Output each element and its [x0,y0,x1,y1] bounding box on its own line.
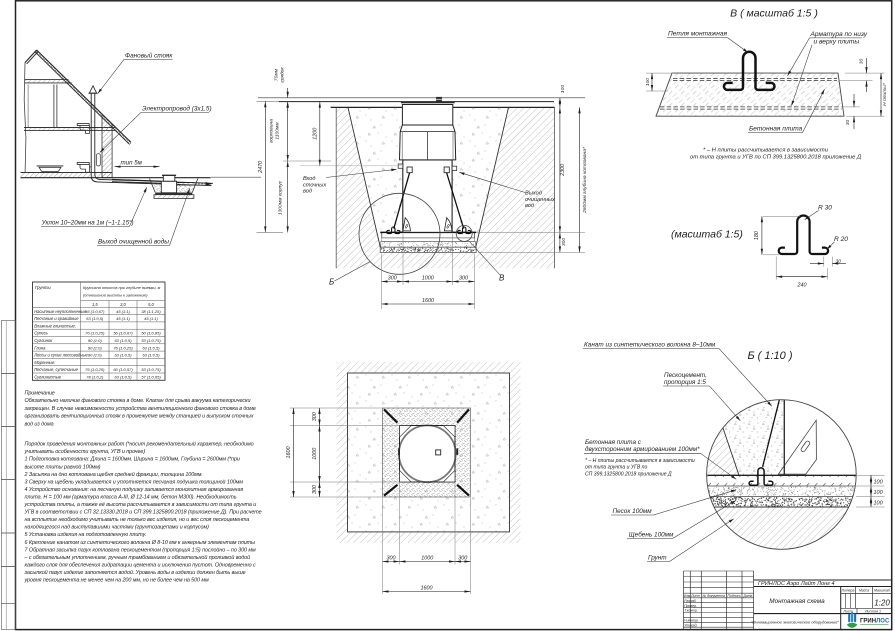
svg-text:60 (1:0,57): 60 (1:0,57) [113,367,133,372]
svg-text:Бетонная плита с: Бетонная плита с [585,439,642,446]
svg-text:56 (1:0,67): 56 (1:0,67) [113,331,133,336]
svg-text:организовать вентиляционный ст: организовать вентиляционный стояк в пром… [25,413,254,420]
svg-text:1600: 1600 [286,447,292,459]
svg-text:Щебень 100мм: Щебень 100мм [629,530,674,538]
svg-text:Арматура по низу: Арматура по низу [810,31,868,38]
svg-text:(отношение высоты к заложению): (отношение высоты к заложению) [83,293,148,298]
svg-text:горловина: горловина [269,119,274,143]
svg-text:300: 300 [459,276,468,282]
svg-text:Листов 1: Листов 1 [864,609,881,613]
svg-text:Монтажная схема: Монтажная схема [769,598,825,605]
svg-text:* – Н плиты рассчитывается в з: * – Н плиты рассчитывается в зависимости [703,147,829,153]
svg-text:Фановый стояк: Фановый стояк [125,51,173,59]
svg-text:30: 30 [845,120,851,126]
svg-text:Примечание: Примечание [25,391,55,397]
svg-text:Разраб.: Разраб. [684,599,696,603]
svg-text:3,0: 3,0 [120,302,126,307]
svg-text:90 (1:0): 90 (1:0) [88,345,102,350]
svg-text:Б ( 1:10 ): Б ( 1:10 ) [747,350,792,362]
svg-text:2300: 2300 [560,164,566,177]
svg-text:53 (1:0,75): 53 (1:0,75) [141,367,161,372]
svg-text:ГРИНЛОС Аэро Лайт Лонг 4: ГРИНЛОС Аэро Лайт Лонг 4 [758,580,835,587]
svg-text:Порядок проведения монтажных р: Порядок проведения монтажных работ (*нос… [25,441,254,448]
svg-text:Б: Б [329,278,334,287]
svg-text:100: 100 [874,490,884,496]
svg-text:5,0: 5,0 [148,302,154,307]
svg-text:от типа грунта и УГВ по: от типа грунта и УГВ по [585,465,647,471]
svg-text:45 (1:1): 45 (1:1) [116,309,130,314]
svg-text:Суглинистые: Суглинистые [34,375,62,380]
svg-text:6 Крепление канатом из синтет: 6 Крепление канатом из синтетического во… [25,540,256,546]
svg-text:вод: вод [303,189,312,195]
svg-text:70мм: 70мм [273,68,279,81]
svg-text:пропорция 1:5: пропорция 1:5 [664,379,706,386]
svg-text:Песчаные, супесчаные: Песчаные, супесчаные [34,367,78,372]
svg-text:1,5: 1,5 [92,302,98,307]
svg-text:Масштаб: Масштаб [874,589,890,593]
svg-text:2 Засыпка на дно котлована ще: 2 Засыпка на дно котлована щебня средней… [24,471,203,478]
svg-text:Вход: Вход [303,176,315,182]
svg-text:Пескоцемент,: Пескоцемент, [664,372,707,379]
svg-text:Провер.: Провер. [684,604,697,608]
svg-text:Песчаные и гравийные: Песчаные и гравийные [34,316,79,321]
svg-text:Утверд.: Утверд. [684,623,697,627]
svg-text:2600мм глубина котлована*: 2600мм глубина котлована* [582,146,588,214]
svg-text:1000: 1000 [421,556,433,562]
svg-text:Петля монтажная: Петля монтажная [668,30,728,37]
svg-text:(масштаб 1:5): (масштаб 1:5) [671,229,743,241]
svg-text:3 Сверху на щебень укладывает: 3 Сверху на щебень укладывается и уплотн… [25,478,244,485]
svg-text:Грунт: Грунт [648,554,667,561]
svg-text:100: 100 [874,479,884,485]
svg-text:1300мм корпус: 1300мм корпус [278,180,284,215]
svg-text:100: 100 [560,85,566,93]
svg-text:Дата: Дата [743,594,753,598]
svg-text:76 (1:0,25): 76 (1:0,25) [113,345,133,350]
svg-text:Уклон 10–20мм на 1м (~1-1.15°): Уклон 10–20мм на 1м (~1-1.15°) [41,219,134,226]
svg-text:Изм.Лист: Изм.Лист [684,594,700,598]
svg-text:1:20: 1:20 [874,599,890,608]
svg-text:Моренные:: Моренные: [34,360,55,365]
svg-text:1600: 1600 [421,586,433,592]
svg-text:Подпись: Подпись [728,594,742,598]
svg-text:“Инновационное экологическое о: “Инновационное экологическое оборудовани… [751,619,839,624]
svg-text:* – Н плиты рассчитывается в з: * – Н плиты рассчитывается в зависимости [585,458,695,464]
svg-text:Электропровод (3х1.5): Электропровод (3х1.5) [142,104,212,112]
svg-text:63 (1:0,5): 63 (1:0,5) [142,345,160,350]
svg-text:уровня пескоцемента не менее ч: уровня пескоцемента не менее чем на 200 … [24,578,210,584]
svg-text:Суглинок: Суглинок [34,338,53,343]
svg-text:грядок: грядок [279,67,285,83]
svg-text:1000: 1000 [422,276,434,282]
svg-text:№ документа: № документа [703,594,726,598]
svg-text:57 (1:0,65): 57 (1:0,65) [141,375,161,380]
svg-text:63 (1:0,5): 63 (1:0,5) [86,316,104,321]
svg-text:300: 300 [312,412,318,421]
svg-text:Бетонная плита: Бетонная плита [749,125,803,132]
svg-text:Глина: Глина [34,345,46,350]
svg-text:R 20: R 20 [834,236,848,243]
svg-text:50 (1:0,85): 50 (1:0,85) [141,331,161,336]
svg-text:Влажные глинистые:: Влажные глинистые: [34,323,76,328]
svg-text:вод из дома: вод из дома [25,421,54,427]
svg-text:плита. Н = 100 мм (арматура кл: плита. Н = 100 мм (арматура класса А-III… [25,494,237,500]
svg-text:запрещен. В случае невозможнос: запрещен. В случае невозможности устройс… [24,405,256,412]
svg-text:тип 5м: тип 5м [121,159,143,166]
svg-text:1100мм: 1100мм [275,122,281,140]
svg-text:Песок 100мм: Песок 100мм [613,508,653,515]
svg-text:45 (1:1): 45 (1:1) [144,316,158,321]
svg-text:Н плиты*: Н плиты* [882,82,888,106]
svg-text:двухсторонним армированием 100: двухсторонним армированием 100мм* [585,445,700,453]
svg-text:90 (1:0): 90 (1:0) [88,338,102,343]
svg-text:Н.контр.: Н.контр. [684,619,698,623]
svg-text:Грунты: Грунты [35,285,51,290]
svg-text:180: 180 [754,231,760,240]
svg-text:45 (1:1): 45 (1:1) [116,316,130,321]
svg-text:76 (1:0,25): 76 (1:0,25) [85,331,105,336]
svg-text:56 (1:0,67): 56 (1:0,67) [85,309,105,314]
svg-text:от типа грунта и УГВ по СП 399: от типа грунта и УГВ по СП 399.1325800.2… [690,155,861,161]
svg-text:63 (1:0,5): 63 (1:0,5) [142,353,160,358]
svg-text:240: 240 [797,282,807,288]
svg-text:– с обязательным уплотнением,: – с обязательным уплотнением, ручным тра… [24,554,251,561]
svg-text:засыпкой пазух изделие заполня: засыпкой пазух изделие заполняется водой… [24,569,246,576]
svg-text:СП 399.1325800.2018 приложение: СП 399.1325800.2018 приложение Д [585,471,672,477]
svg-text:300: 300 [458,556,467,562]
svg-text:63 (1:0,5): 63 (1:0,5) [114,375,132,380]
svg-text:300: 300 [561,238,567,246]
svg-text:1000: 1000 [312,448,318,460]
svg-text:1 Подготовка котлована: Длина: 1 Подготовка котлована: Длина = 1600мм. … [25,457,240,463]
svg-text:30: 30 [836,258,842,264]
svg-text:300: 300 [388,276,397,282]
svg-text:5 Установка изделия на подгот: 5 Установка изделия на подготовленную пл… [25,532,147,538]
svg-text:Лессы и сухие лессовидные: Лессы и сухие лессовидные [33,353,88,358]
svg-text:В ( масштаб 1:5 ): В ( масштаб 1:5 ) [730,8,818,20]
svg-text:Супесь: Супесь [34,331,48,336]
svg-text:устройства плиты, а также её в: устройства плиты, а также её высота расс… [24,501,257,508]
svg-text:учитывать особенности грунта,: учитывать особенности грунта, УГВ и проч… [24,449,146,455]
svg-text:78 (1:0,2): 78 (1:0,2) [86,375,104,380]
svg-text:30: 30 [859,59,865,65]
svg-text:Канат из синтетического волокн: Канат из синтетического волокна 8–10мм [584,341,716,348]
svg-text:вод: вод [525,203,534,209]
svg-text:90 (1:0): 90 (1:0) [88,353,102,358]
svg-text:300: 300 [387,556,396,562]
svg-text:100: 100 [645,78,651,86]
svg-text:300: 300 [312,485,318,494]
svg-text:Масса: Масса [859,589,869,593]
svg-text:высоте плиты равной 100мм): высоте плиты равной 100мм) [25,463,101,470]
svg-text:76 (1:0,25): 76 (1:0,25) [85,367,105,372]
svg-text:R 30: R 30 [818,204,832,211]
svg-text:Литера: Литера [841,589,855,593]
svg-text:Обязательно наличие фанового с: Обязательно наличие фанового стояка в до… [25,398,251,404]
svg-text:каждого слоя для обеспечения г: каждого слоя для обеспечения гидратации … [25,562,256,568]
svg-text:Выход: Выход [525,191,542,197]
svg-text:Насыпные неуплотненные: Насыпные неуплотненные [34,309,87,314]
svg-text:Выход очищенной воды: Выход очищенной воды [98,237,169,245]
svg-text:53 (1:0,75): 53 (1:0,75) [141,338,161,343]
svg-text:и верху плиты: и верху плиты [814,39,860,46]
svg-text:сточных: сточных [303,182,326,188]
svg-text:1200: 1200 [312,128,318,140]
svg-text:Крутизна откосов при глубине в: Крутизна откосов при глубине выемки, м [83,285,161,290]
svg-text:100: 100 [874,500,884,506]
svg-text:4 Устройство основания: на пе: 4 Устройство основания: на песчаную поду… [25,486,244,493]
svg-text:Т.контр.: Т.контр. [684,609,698,613]
svg-text:очищенных: очищенных [525,197,555,203]
svg-text:1600: 1600 [422,298,434,304]
svg-text:2470: 2470 [258,161,264,174]
svg-text:ГРИНЛОС: ГРИНЛОС [860,618,890,624]
svg-text:7 Обратная засыпка пазух котл: 7 Обратная засыпка пазух котлована песко… [25,546,256,553]
svg-text:38 (1:1,25): 38 (1:1,25) [141,309,161,314]
svg-text:63 (1:0,5): 63 (1:0,5) [114,338,132,343]
svg-text:на всплытие необходимо учитыв: на всплытие необходимо учитывать не толь… [25,517,250,523]
svg-text:УГВ в соответствии с СП 32.133: УГВ в соответствии с СП 32.13330.2018 и … [24,510,262,516]
svg-text:63 (1:0,5): 63 (1:0,5) [114,353,132,358]
svg-text:находящегося над выступавшими: находящегося над выступавшими частями (г… [25,525,210,531]
